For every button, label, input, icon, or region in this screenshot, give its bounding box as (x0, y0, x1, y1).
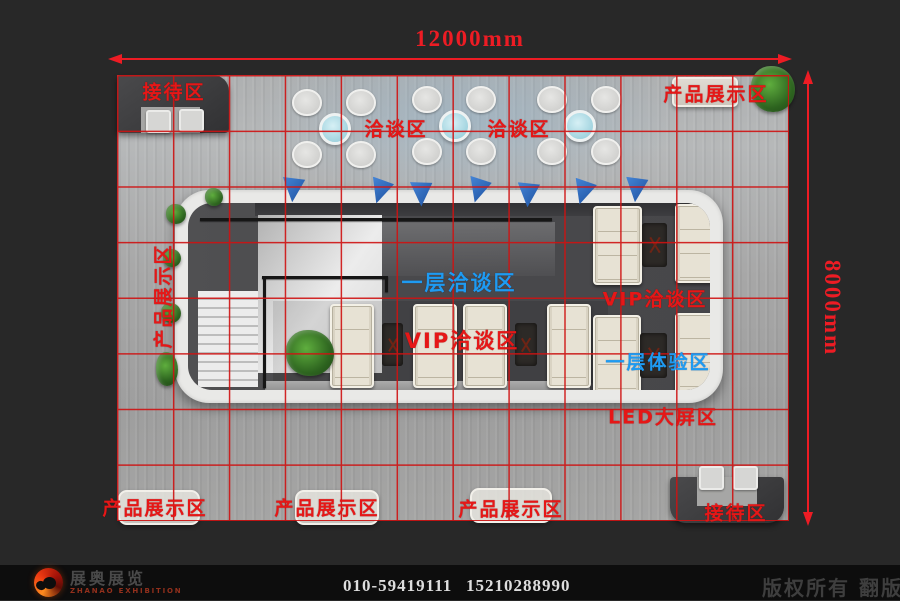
sofa (330, 304, 374, 388)
stool (146, 110, 171, 133)
chair (346, 141, 376, 168)
chair (591, 86, 621, 113)
chair (466, 138, 496, 165)
label-product-display-bottom-2: 产品展示区 (274, 494, 379, 521)
phone-secondary: 15210288990 (466, 576, 571, 596)
label-vip-negotiation-center: VIP洽谈区 (405, 325, 519, 355)
label-first-floor-negotiation: 一层洽谈区 (402, 267, 517, 297)
large-plant (286, 330, 334, 376)
chair (346, 89, 376, 116)
label-product-display-top: 产品展示区 (663, 80, 768, 107)
coffee-table (382, 323, 403, 366)
railing (385, 276, 388, 292)
label-first-floor-experience: 一层体验区 (605, 348, 710, 375)
dimension-depth-value: 8000mm (819, 260, 845, 356)
label-negotiation-1: 洽谈区 (364, 115, 427, 142)
label-product-display-bottom-3: 产品展示区 (458, 495, 563, 522)
plant (166, 204, 186, 224)
plant (205, 188, 223, 206)
sofa (547, 304, 591, 388)
chair (292, 89, 322, 116)
dimension-line-vertical (807, 80, 809, 514)
dimension-line-horizontal (118, 58, 782, 60)
staircase (198, 291, 258, 387)
arrow-right-icon (778, 54, 792, 64)
railing (200, 218, 552, 221)
logo-name-en: ZHANAO EXHIBITION (70, 587, 182, 595)
round-table (439, 110, 471, 142)
phone-primary: 010-59419111 (343, 576, 452, 596)
chair (591, 138, 621, 165)
label-vip-negotiation-right: VIP洽谈区 (603, 285, 708, 312)
stool (699, 466, 724, 490)
label-led-screen: LED大屏区 (608, 403, 718, 430)
logo-name-cn: 展奥展览 (70, 571, 182, 587)
round-table (319, 113, 351, 145)
logo-swirl-icon (34, 568, 63, 597)
copyright-watermark: 版权所有 翻版必究 (762, 572, 900, 601)
arrow-left-icon (108, 54, 122, 64)
dimension-width-value: 12000mm (415, 26, 525, 52)
chair (292, 141, 322, 168)
label-reception-bottom: 接待区 (704, 499, 767, 526)
arrow-down-icon (803, 512, 813, 526)
stool (179, 109, 204, 132)
railing (262, 276, 388, 279)
sofa (675, 204, 710, 283)
label-reception-top: 接待区 (142, 78, 205, 105)
chair (412, 138, 442, 165)
footer-bar: 展奥展览 ZHANAO EXHIBITION 010-59419111 1521… (0, 565, 900, 600)
round-table (564, 110, 596, 142)
railing (263, 276, 266, 388)
label-product-display-bottom-1: 产品展示区 (102, 494, 207, 521)
floor-plan-canvas: 接待区 产品展示区 产品展示区 洽谈区 洽谈区 一层洽谈区 VIP洽谈区 VIP… (0, 0, 900, 600)
sofa (593, 206, 642, 285)
arrow-up-icon (803, 70, 813, 84)
label-negotiation-2: 洽谈区 (487, 115, 550, 142)
plant (156, 352, 178, 386)
label-product-display-left: 产品展示区 (149, 243, 176, 348)
logo-text-block: 展奥展览 ZHANAO EXHIBITION (70, 571, 182, 595)
chair (537, 86, 567, 113)
chair (412, 86, 442, 113)
chair (537, 138, 567, 165)
coffee-table (642, 223, 667, 267)
chair (466, 86, 496, 113)
company-logo: 展奥展览 ZHANAO EXHIBITION (34, 568, 182, 597)
stool (733, 466, 758, 490)
